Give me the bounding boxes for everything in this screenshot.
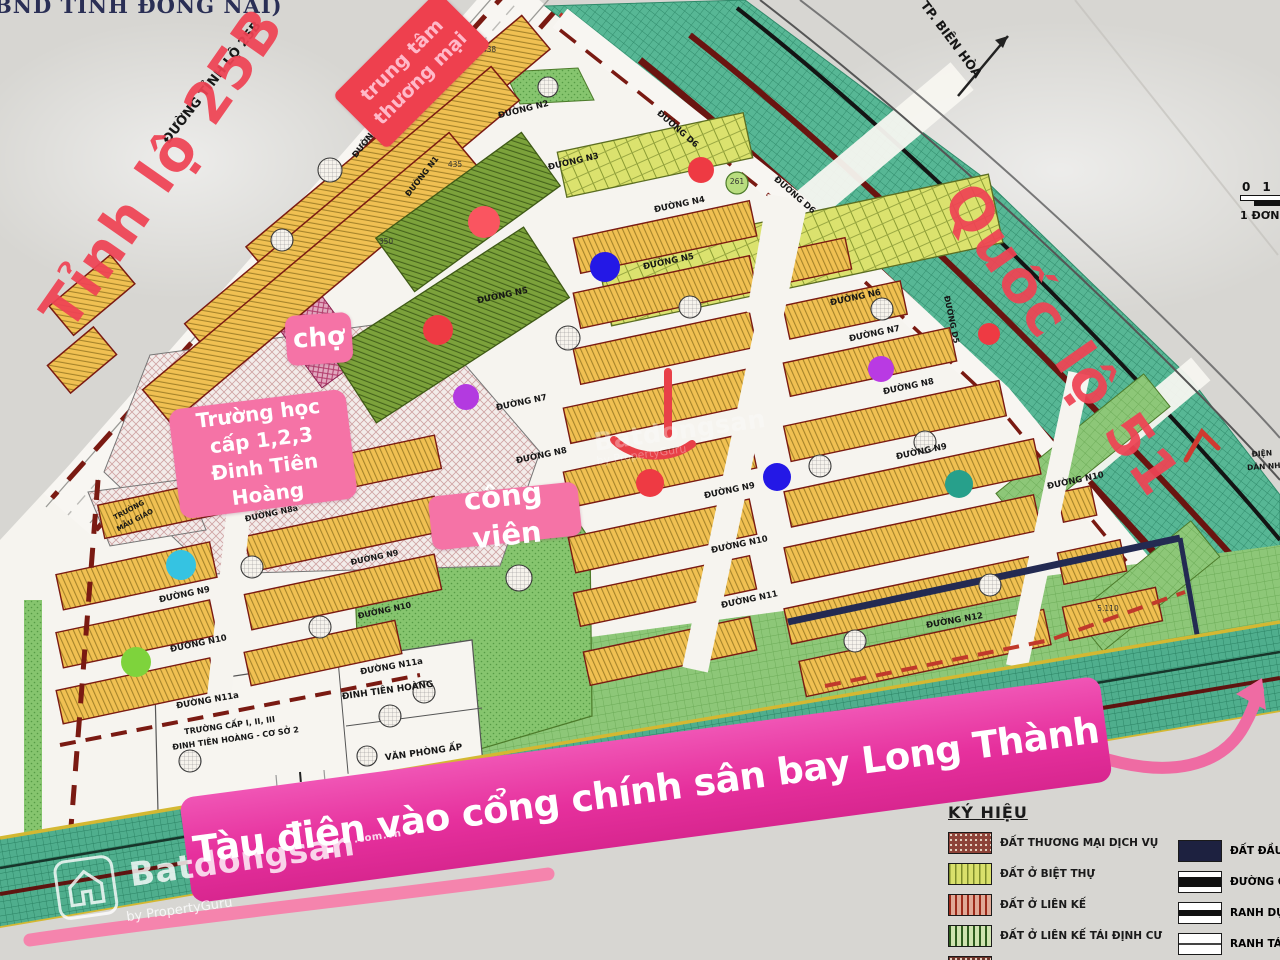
tree-symbol: [506, 565, 532, 591]
place-label: ĐIỆN: [1251, 448, 1272, 458]
legend-row: RANH DỰ Á: [1178, 902, 1280, 924]
legend-swatch-rowhouse: [948, 894, 992, 916]
legend-label: ĐẤT Ở BIỆT THỰ: [1000, 868, 1095, 880]
legend-label: RANH TÁI ĐỊ: [1230, 938, 1280, 950]
annotation-dot: [636, 469, 664, 497]
plot-number: 261: [730, 177, 745, 186]
legend-label: ĐẤT Ở LIÊN KẾ TÁI ĐỊNH CƯ: [1000, 930, 1162, 942]
annotation-dot: [688, 157, 714, 183]
tree-symbol: [379, 705, 401, 727]
annotation-dot: [453, 384, 479, 410]
legend-label: RANH DỰ Á: [1230, 907, 1280, 919]
legend-title: KÝ HIỆU: [948, 803, 1280, 822]
legend-swatch-ranh1: [1178, 902, 1222, 924]
annotation-dot: [423, 315, 453, 345]
legend-row: ĐẤT ĐẦU M: [1178, 840, 1280, 862]
tree-symbol: [309, 616, 331, 638]
annotation-dot: [868, 356, 894, 382]
plot-number: 435: [448, 160, 463, 169]
annotation-dot: [590, 252, 620, 282]
tree-symbol: [179, 750, 201, 772]
legend-label: ĐẤT THƯƠNG MẠI DỊCH VỤ: [1000, 837, 1158, 849]
scale-unit: 1 ĐƠN: [1240, 209, 1280, 222]
legend-swatch-resettle: [948, 925, 992, 947]
annotation-dot: [166, 550, 196, 580]
legend-swatch-villa: [948, 863, 992, 885]
tree-symbol: [318, 158, 342, 182]
tree-symbol: [241, 556, 263, 578]
tree-symbol: [979, 574, 1001, 596]
annotation-dot: [468, 206, 500, 238]
watermark-house-icon: [52, 854, 120, 922]
legend-swatch-navy: [1178, 840, 1222, 862]
cho-text: chợ: [292, 320, 346, 359]
tree-symbol: [357, 746, 377, 766]
map-photo: ĐƯỜNG TỈNH LỘ 25BĐƯỜNG N1ĐƯỜNG N1ĐƯỜNG N…: [0, 0, 1280, 960]
legend-right-column: ĐẤT ĐẦU MĐƯỜNG QURANH DỰ ÁRANH TÁI ĐỊ: [1178, 840, 1280, 960]
legend-label: ĐẤT Ở LIÊN KẾ: [1000, 899, 1086, 911]
plot-number: 5.110: [1097, 604, 1119, 613]
cong-vien-label: công viên: [428, 481, 583, 550]
scale-tick-1: 1: [1262, 180, 1270, 194]
annotation-dot: [763, 463, 791, 491]
tree-symbol: [556, 326, 580, 350]
tree-symbol: [844, 630, 866, 652]
scale-tick-0: 0: [1242, 180, 1250, 194]
legend-label: ĐƯỜNG QU: [1230, 876, 1280, 888]
cho-label: chợ: [284, 312, 353, 366]
annotation-dot: [978, 323, 1000, 345]
tree-symbol: [809, 455, 831, 477]
scale-bar: 0 1 1 ĐƠN: [1240, 180, 1280, 222]
legend-swatch-ranh2: [1178, 933, 1222, 955]
scale-bar-lower: [1254, 200, 1280, 206]
cong-vien-text: công viên: [426, 469, 583, 563]
legend-row: ĐƯỜNG QU: [1178, 871, 1280, 893]
tree-symbol: [679, 296, 701, 318]
truong-hoc-label: Trường học cấp 1,2,3 Đinh Tiên Hoàng: [168, 389, 358, 520]
plot-number: 350: [379, 237, 394, 246]
annotation-dot: [945, 470, 973, 498]
tree-symbol: [271, 229, 293, 251]
legend-row: RANH TÁI ĐỊ: [1178, 933, 1280, 955]
tree-symbol: [871, 298, 893, 320]
annotation-dot: [121, 647, 151, 677]
tree-symbol: [538, 77, 558, 97]
legend-swatch-commercial2: [948, 956, 992, 960]
legend-label: ĐẤT ĐẦU M: [1230, 845, 1280, 857]
legend-swatch-commercial: [948, 832, 992, 854]
legend-swatch-road: [1178, 871, 1222, 893]
